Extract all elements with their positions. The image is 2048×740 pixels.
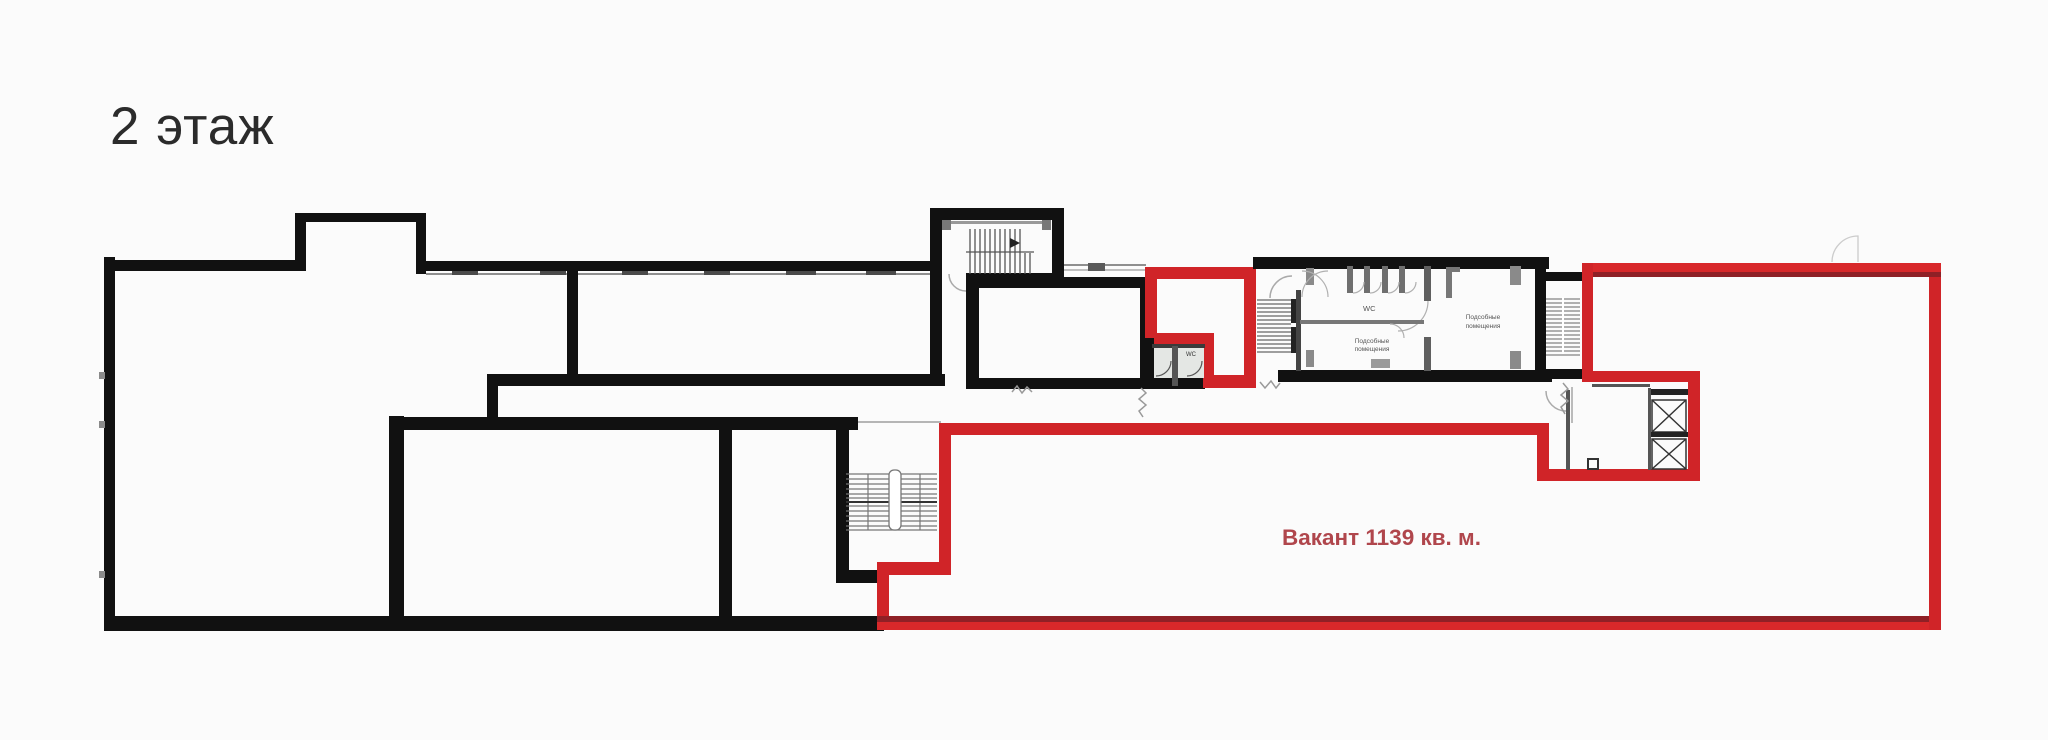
svg-text:Подсобные: Подсобные xyxy=(1355,337,1390,345)
svg-text:WC: WC xyxy=(1363,304,1376,313)
svg-text:Подсобные: Подсобные xyxy=(1466,313,1501,321)
svg-text:WC: WC xyxy=(1186,352,1197,358)
svg-text:помещения: помещения xyxy=(1466,323,1501,330)
svg-text:помещения: помещения xyxy=(1355,346,1390,353)
svg-text:Вакант 1139 кв. м.: Вакант 1139 кв. м. xyxy=(1282,525,1481,550)
svg-text:2 этаж: 2 этаж xyxy=(110,97,275,156)
